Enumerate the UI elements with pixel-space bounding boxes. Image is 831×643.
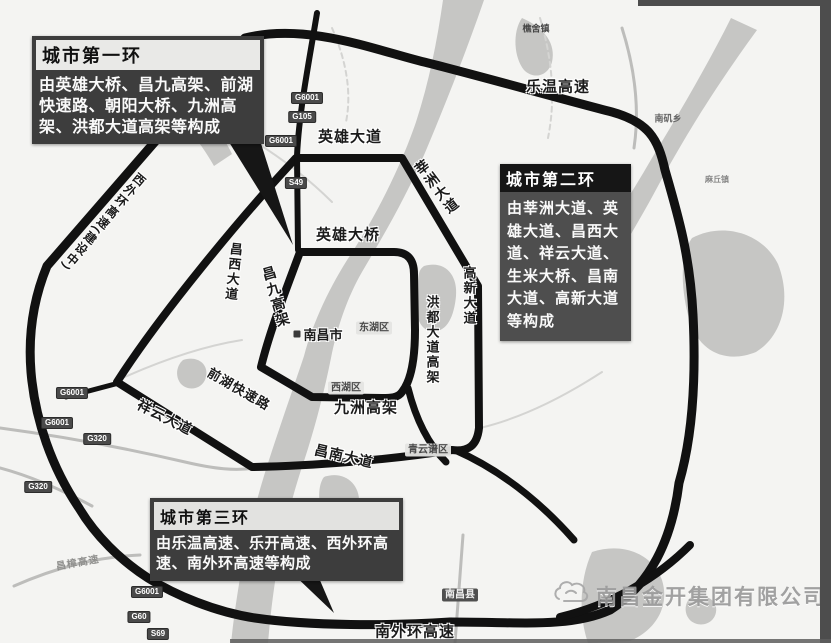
callout-ring2-title: 城市第二环 bbox=[500, 164, 631, 192]
road-label-gaoxin-ave: 高新大道 bbox=[463, 266, 476, 326]
road-shield-g6001-w1: G6001 bbox=[56, 387, 88, 399]
road-shield-g60: G60 bbox=[127, 611, 150, 623]
road-label-lewen-expwy: 乐温高速 bbox=[526, 80, 590, 95]
city-name: 南昌市 bbox=[303, 325, 342, 344]
callout-ring1-title: 城市第一环 bbox=[36, 40, 260, 70]
road-label-yingxiong-ave: 英雄大道 bbox=[318, 130, 382, 145]
callout-ring1-body: 由英雄大桥、昌九高架、前湖快速路、朝阳大桥、九洲高架、洪都大道高架等构成 bbox=[36, 70, 260, 140]
road-label-yingxiong-bridge: 英雄大桥 bbox=[316, 228, 380, 243]
callout-ring3-title: 城市第三环 bbox=[154, 502, 399, 530]
qian-lake bbox=[177, 359, 206, 389]
changnan-se-spur bbox=[455, 450, 574, 540]
image-border-top bbox=[638, 0, 831, 6]
company-name: 南昌金开集团有限公司 bbox=[596, 581, 826, 611]
district-label-xihu: 西湖区 bbox=[328, 382, 364, 395]
nanchang-ring-roads-map: 乐温高速 英雄大道 英雄大桥 莘洲大道 昌西大道 昌九高架 前湖快速路 洪都大道… bbox=[0, 0, 831, 643]
town-label-maqiu: 麻丘镇 bbox=[705, 176, 729, 184]
town-label-nanji: 南矶乡 bbox=[654, 115, 681, 124]
callout-ring3-body: 由乐温高速、乐开高速、西外环高速、南外环高速等构成 bbox=[154, 530, 399, 577]
callout-ring1: 城市第一环 由英雄大桥、昌九高架、前湖快速路、朝阳大桥、九洲高架、洪都大道高架等… bbox=[32, 36, 264, 144]
road-shield-g105: G105 bbox=[288, 111, 316, 123]
road-shield-s69: S69 bbox=[147, 628, 169, 640]
road-shield-g6001-n1: G6001 bbox=[291, 92, 323, 104]
changjiu-north-spur bbox=[297, 13, 317, 250]
image-border-right bbox=[820, 0, 831, 643]
callout-ring2-body: 由莘洲大道、英雄大道、昌西大道、祥云大道、生米大桥、昌南大道、高新大道等构成 bbox=[500, 192, 631, 341]
district-label-donghu: 东湖区 bbox=[356, 322, 392, 335]
road-shield-g6001-s: G6001 bbox=[131, 586, 163, 598]
image-border-bottom bbox=[230, 639, 831, 643]
county-label-nanchang: 南昌县 bbox=[442, 589, 478, 602]
watermark: 南昌金开集团有限公司 bbox=[552, 578, 826, 613]
road-shield-g320-w2: G320 bbox=[24, 481, 52, 493]
road-label-south-outer-ring: 南外环高速 bbox=[375, 625, 455, 640]
ne-local-road bbox=[622, 28, 636, 148]
company-logo-icon bbox=[552, 578, 590, 613]
road-shield-s49: S49 bbox=[285, 177, 307, 189]
callout-ring2: 城市第二环 由莘洲大道、英雄大道、昌西大道、祥云大道、生米大桥、昌南大道、高新大… bbox=[500, 164, 631, 341]
city-marker-icon bbox=[293, 331, 300, 338]
road-shield-g6001-n2: G6001 bbox=[265, 135, 297, 147]
road-shield-g320-w1: G320 bbox=[83, 433, 111, 445]
road-label-jiuzhou-viaduct: 九洲高架 bbox=[334, 401, 398, 416]
callout-ring3: 城市第三环 由乐温高速、乐开高速、西外环高速、南外环高速等构成 bbox=[150, 498, 403, 581]
district-label-qingyunpu: 青云谱区 bbox=[405, 444, 451, 457]
road-shield-g6001-w2: G6001 bbox=[41, 417, 73, 429]
road-label-hongdu-viaduct: 洪都大道高架 bbox=[426, 295, 439, 385]
city-label-nanchang: 南昌市 bbox=[293, 325, 342, 344]
town-label-qiaoshe: 樵舍镇 bbox=[522, 25, 549, 34]
